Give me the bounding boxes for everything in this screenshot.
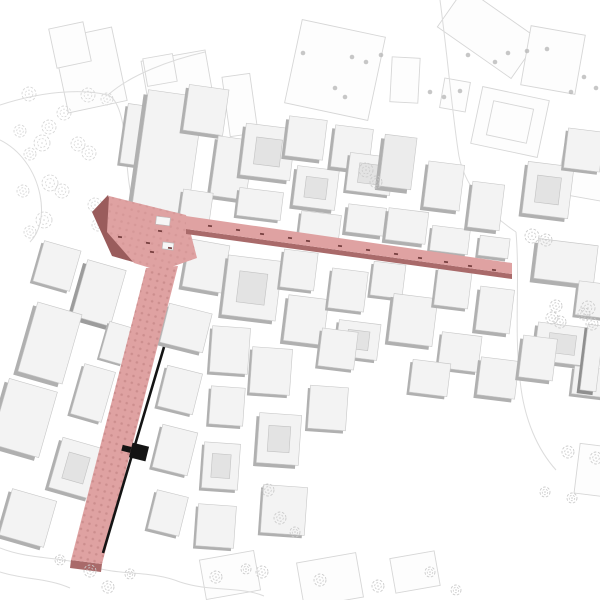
tree-dot-icon <box>350 55 355 60</box>
building-courtyard <box>253 137 282 167</box>
tree-dot-icon <box>594 86 599 91</box>
building-block <box>325 268 368 315</box>
tree-dot-icon <box>493 60 498 65</box>
building-block <box>289 165 339 214</box>
building-block <box>472 286 515 338</box>
building-block <box>315 328 358 373</box>
outline-building <box>521 26 586 95</box>
building-block <box>382 207 429 248</box>
building-block <box>199 442 241 494</box>
building-block <box>207 326 251 378</box>
building-block <box>305 385 349 434</box>
building-courtyard <box>236 271 268 305</box>
tree-dot-icon <box>343 95 348 100</box>
tree-dot-icon <box>569 90 574 95</box>
building-block <box>375 134 417 194</box>
building-block <box>420 161 465 215</box>
building-courtyard <box>534 175 561 205</box>
building-block <box>234 187 284 223</box>
urban-map-figure <box>0 0 600 600</box>
building-block <box>464 181 505 235</box>
tree-dot-icon <box>458 89 463 94</box>
building-courtyard <box>211 453 231 478</box>
building-block <box>193 504 236 552</box>
building-block <box>281 115 327 163</box>
building-block <box>473 356 519 402</box>
outline-building <box>285 20 386 121</box>
building-block <box>561 128 600 175</box>
building-block <box>218 255 282 325</box>
tree-dot-icon <box>428 90 433 95</box>
outline-building <box>49 22 92 68</box>
tree-dot-icon <box>442 95 447 100</box>
tree-dot-icon <box>466 53 471 58</box>
building-block <box>406 359 450 400</box>
building-block <box>247 346 293 398</box>
tree-dot-icon <box>506 51 511 56</box>
building-block <box>180 84 230 139</box>
plaza-kiosk <box>162 242 174 250</box>
tree-dot-icon <box>333 86 338 91</box>
building-block <box>385 293 438 350</box>
building-courtyard <box>267 425 291 452</box>
tree-dot-icon <box>582 75 587 80</box>
outline-building <box>390 57 420 103</box>
building-block <box>277 249 318 294</box>
building-block <box>342 203 387 240</box>
tree-dot-icon <box>301 51 306 56</box>
tree-dot-icon <box>379 53 384 58</box>
building-block <box>475 235 510 262</box>
outline-building <box>143 54 177 87</box>
building-block <box>431 267 472 312</box>
tree-dot-icon <box>364 60 369 65</box>
building-block <box>253 412 302 469</box>
plaza-kiosk <box>156 216 171 226</box>
building-courtyard <box>304 176 328 199</box>
tree-dot-icon <box>525 49 530 54</box>
building-block <box>206 386 245 429</box>
tree-dot-icon <box>545 47 550 52</box>
building-block <box>515 335 557 385</box>
site-plan-canvas <box>0 0 600 600</box>
